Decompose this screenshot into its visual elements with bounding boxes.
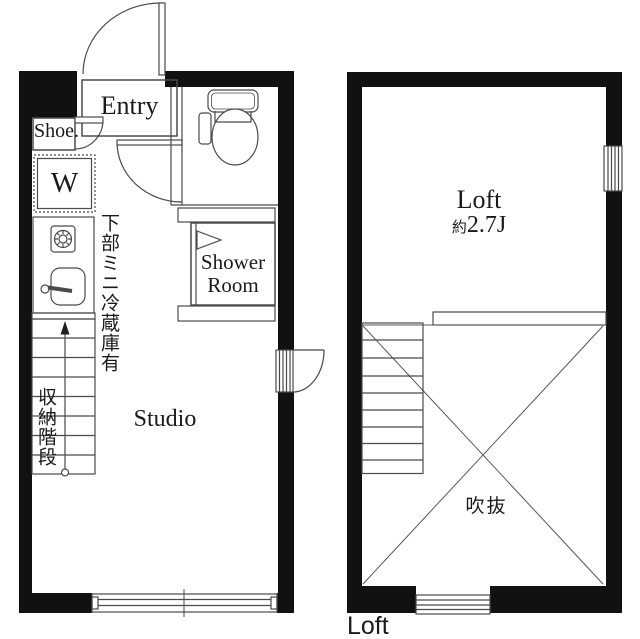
storage-stairs-note: 収納階段	[36, 387, 55, 467]
studio-label: Studio	[115, 406, 215, 433]
loft-staircase	[362, 323, 423, 474]
shower-room-label: Shower Room	[191, 251, 275, 297]
loft-label: Loft	[429, 185, 529, 215]
shoe-cabinet-label: Shoe.	[34, 120, 79, 143]
loft-ledge	[433, 312, 606, 325]
floor-plan-page: Entry Shoe. W 下部ミニ冷蔵庫有 Shower Room Studi…	[0, 0, 640, 639]
loft-bottom-window	[416, 595, 490, 614]
shoe-cabinet-door-arc	[75, 117, 103, 149]
void-area	[362, 325, 606, 584]
lower-shelf	[178, 306, 275, 321]
side-door	[276, 350, 324, 392]
hall-door-arc	[117, 140, 182, 202]
loft-size-value: 2.7J	[467, 212, 506, 238]
fridge-note: 下部ミニ冷蔵庫有	[99, 213, 118, 373]
loft-floor-caption: Loft	[347, 612, 389, 639]
void-label: 吹抜	[446, 491, 527, 518]
loft-walls	[347, 72, 622, 613]
washer-label: W	[37, 167, 92, 200]
loft-floor-plan	[347, 72, 622, 614]
loft-size-label: 約2.7J	[424, 212, 534, 239]
entrance-door-arc	[83, 3, 165, 75]
gas-burner-icon	[51, 226, 75, 252]
loft-size-prefix: 約	[452, 220, 467, 236]
up-arrow-icon	[61, 321, 70, 476]
upper-shelf	[178, 208, 275, 222]
entry-label: Entry	[82, 91, 177, 121]
toilet-icon	[199, 90, 258, 165]
loft-side-window	[604, 146, 622, 191]
studio-window	[92, 589, 277, 617]
sink-icon	[41, 268, 85, 305]
